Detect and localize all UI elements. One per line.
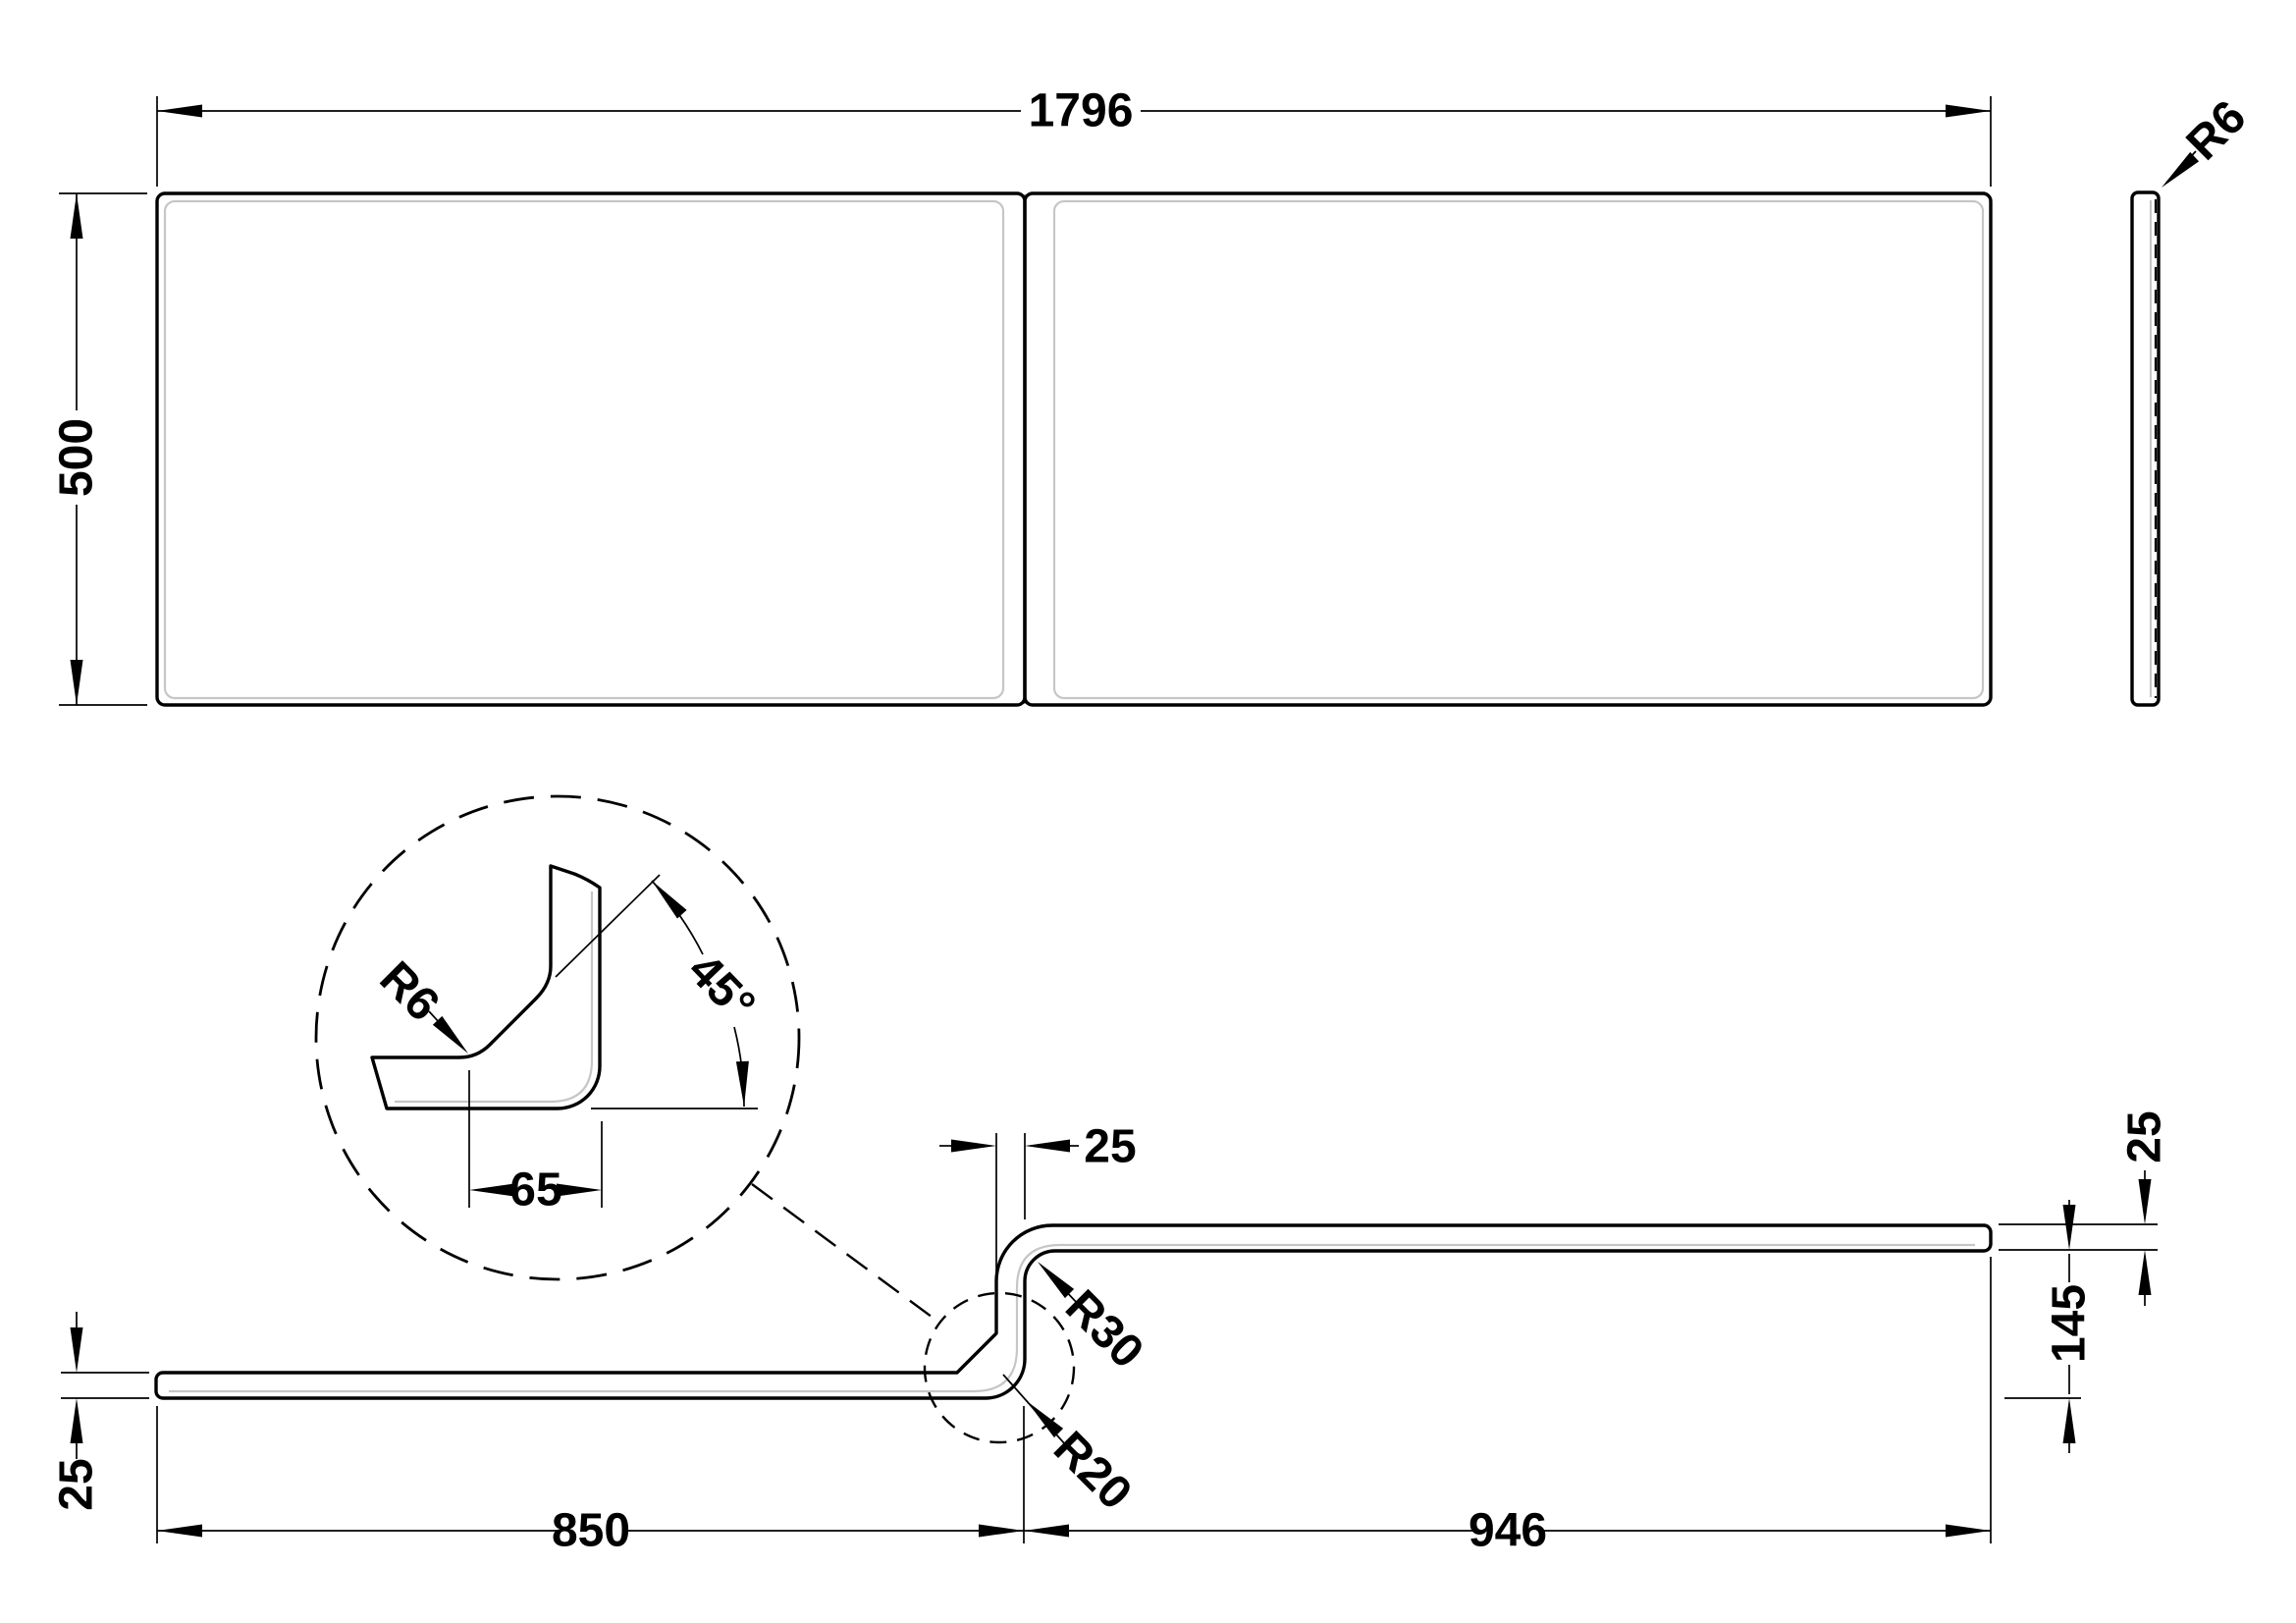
- dim-arrowhead: [2063, 1398, 2076, 1443]
- detail-65-arrow-left: [469, 1184, 514, 1197]
- dim-arrowhead: [71, 1327, 83, 1373]
- angle-arc-arrowhead-bottom: [736, 1061, 751, 1107]
- left-thickness-label: 25: [51, 1458, 103, 1510]
- r30-arrowhead: [1033, 1257, 1074, 1298]
- dim-arrowhead: [1025, 1140, 1070, 1153]
- dim-right-section-length: 946: [1024, 1257, 1991, 1557]
- dim-arrowhead: [71, 660, 83, 705]
- offset-depth-label: 145: [2044, 1284, 2096, 1363]
- front-left-panel-inner-edge: [165, 201, 1003, 698]
- dim-arrowhead: [979, 1525, 1024, 1538]
- dim-arrowhead: [157, 1525, 202, 1538]
- dim-left-thickness: 25: [51, 1312, 150, 1511]
- side-view: R6: [2132, 91, 2256, 705]
- side-r6-arrowhead: [2158, 152, 2200, 192]
- dim-arrowhead: [157, 105, 202, 118]
- dim-arrowhead: [1024, 1525, 1069, 1538]
- dim-arrowhead: [1946, 105, 1991, 118]
- dim-arrowhead: [71, 1398, 83, 1443]
- right-thickness-label: 25: [2119, 1110, 2171, 1163]
- dim-arrowhead: [2063, 1205, 2076, 1250]
- detail-65-arrow-right: [557, 1184, 602, 1197]
- detail-chamfer-extension-line: [556, 875, 660, 977]
- dim-left-section-length: 850: [157, 1406, 1024, 1557]
- overall-width-label: 1796: [1029, 85, 1134, 137]
- technical-drawing-sheet: R6 R30 R20 R6 45°: [0, 0, 2296, 1623]
- detail-chamfer-angle-label: 45°: [678, 944, 766, 1031]
- dim-right-thickness: 25: [1999, 1110, 2171, 1306]
- front-left-panel-outline: [157, 193, 1025, 705]
- dim-arrowhead: [1946, 1525, 1991, 1538]
- dim-arrowhead: [2139, 1250, 2152, 1295]
- drawing-canvas: R6 R30 R20 R6 45°: [0, 0, 2296, 1623]
- dim-panel-height: 500: [51, 193, 148, 705]
- front-right-panel-outline: [1025, 193, 1991, 705]
- front-right-panel-inner-edge: [1054, 201, 1983, 698]
- dim-offset-depth: 145: [2004, 1200, 2096, 1453]
- right-section-length-label: 946: [1468, 1505, 1547, 1557]
- dim-arrowhead: [951, 1140, 996, 1153]
- dim-arrowhead: [2139, 1179, 2152, 1224]
- dim-arrowhead: [71, 193, 83, 239]
- dim-overall-width: 1796: [157, 85, 1991, 188]
- r20-arrowhead: [1022, 1396, 1063, 1437]
- front-view: [157, 193, 1991, 705]
- detail-flange-width-label: 65: [509, 1164, 561, 1217]
- detail-r6-arrowhead: [433, 1016, 473, 1058]
- detail-leader-dashed: [752, 1184, 935, 1320]
- detail-view: R6 45° 65: [316, 796, 799, 1279]
- panel-height-label: 500: [51, 418, 103, 497]
- bend-width-label: 25: [1084, 1121, 1136, 1173]
- plan-view: R30 R20: [156, 1184, 1991, 1520]
- left-section-length-label: 850: [552, 1505, 630, 1557]
